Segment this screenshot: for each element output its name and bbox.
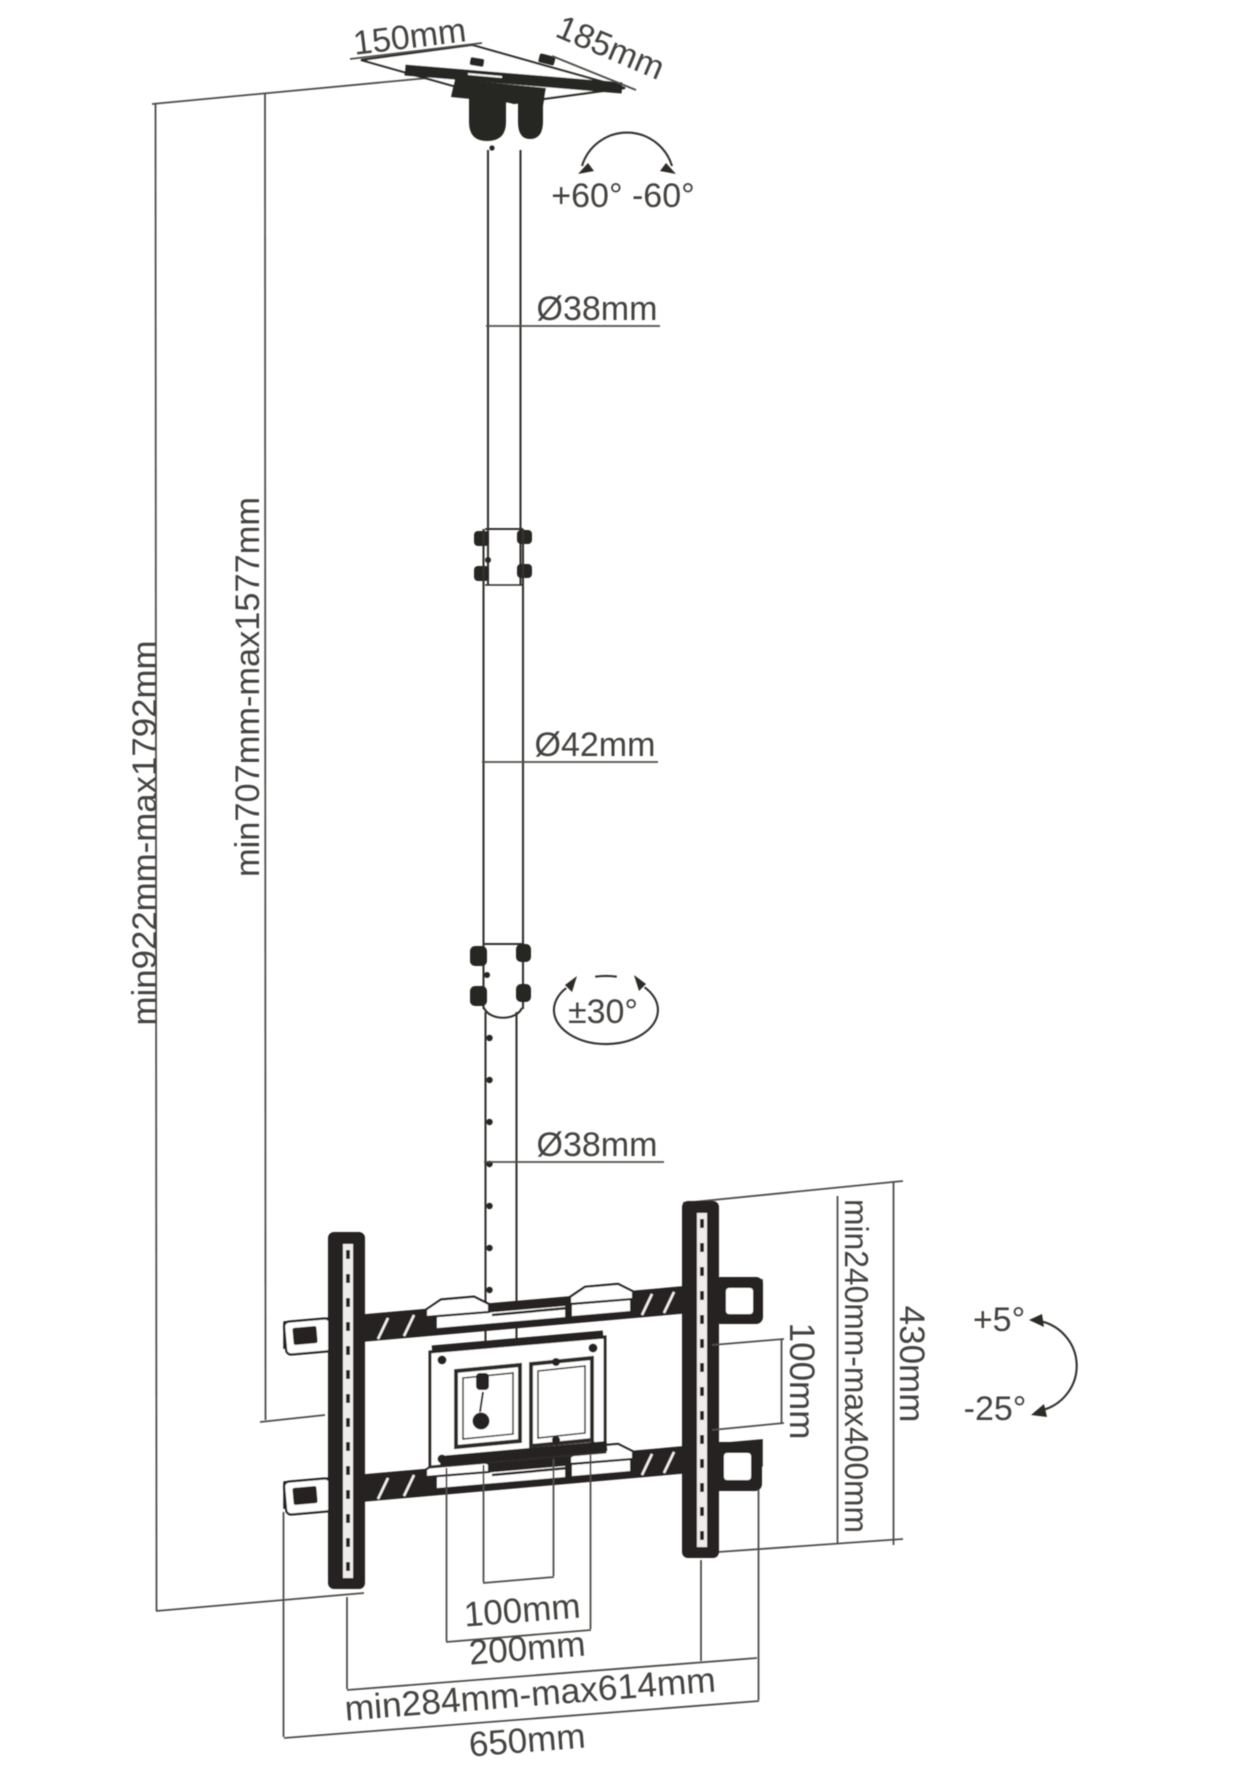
svg-text:-25°: -25° bbox=[964, 1390, 1027, 1428]
svg-text:430mm: 430mm bbox=[892, 1306, 931, 1423]
svg-text:min922mm-max1792mm: min922mm-max1792mm bbox=[126, 641, 164, 1026]
svg-text:Ø42mm: Ø42mm bbox=[535, 726, 656, 764]
svg-text:+5°: +5° bbox=[973, 1301, 1025, 1339]
svg-text:100mm: 100mm bbox=[782, 1323, 821, 1440]
svg-text:650mm: 650mm bbox=[467, 1717, 586, 1765]
svg-text:min240mm-max400mm: min240mm-max400mm bbox=[838, 1199, 875, 1533]
svg-text:+60° -60°: +60° -60° bbox=[551, 177, 694, 215]
svg-text:Ø38mm: Ø38mm bbox=[537, 290, 658, 328]
svg-text:±30°: ±30° bbox=[568, 993, 638, 1031]
svg-text:200mm: 200mm bbox=[467, 1625, 586, 1673]
svg-text:Ø38mm: Ø38mm bbox=[537, 1126, 658, 1164]
svg-text:min707mm-max1577mm: min707mm-max1577mm bbox=[229, 497, 267, 877]
